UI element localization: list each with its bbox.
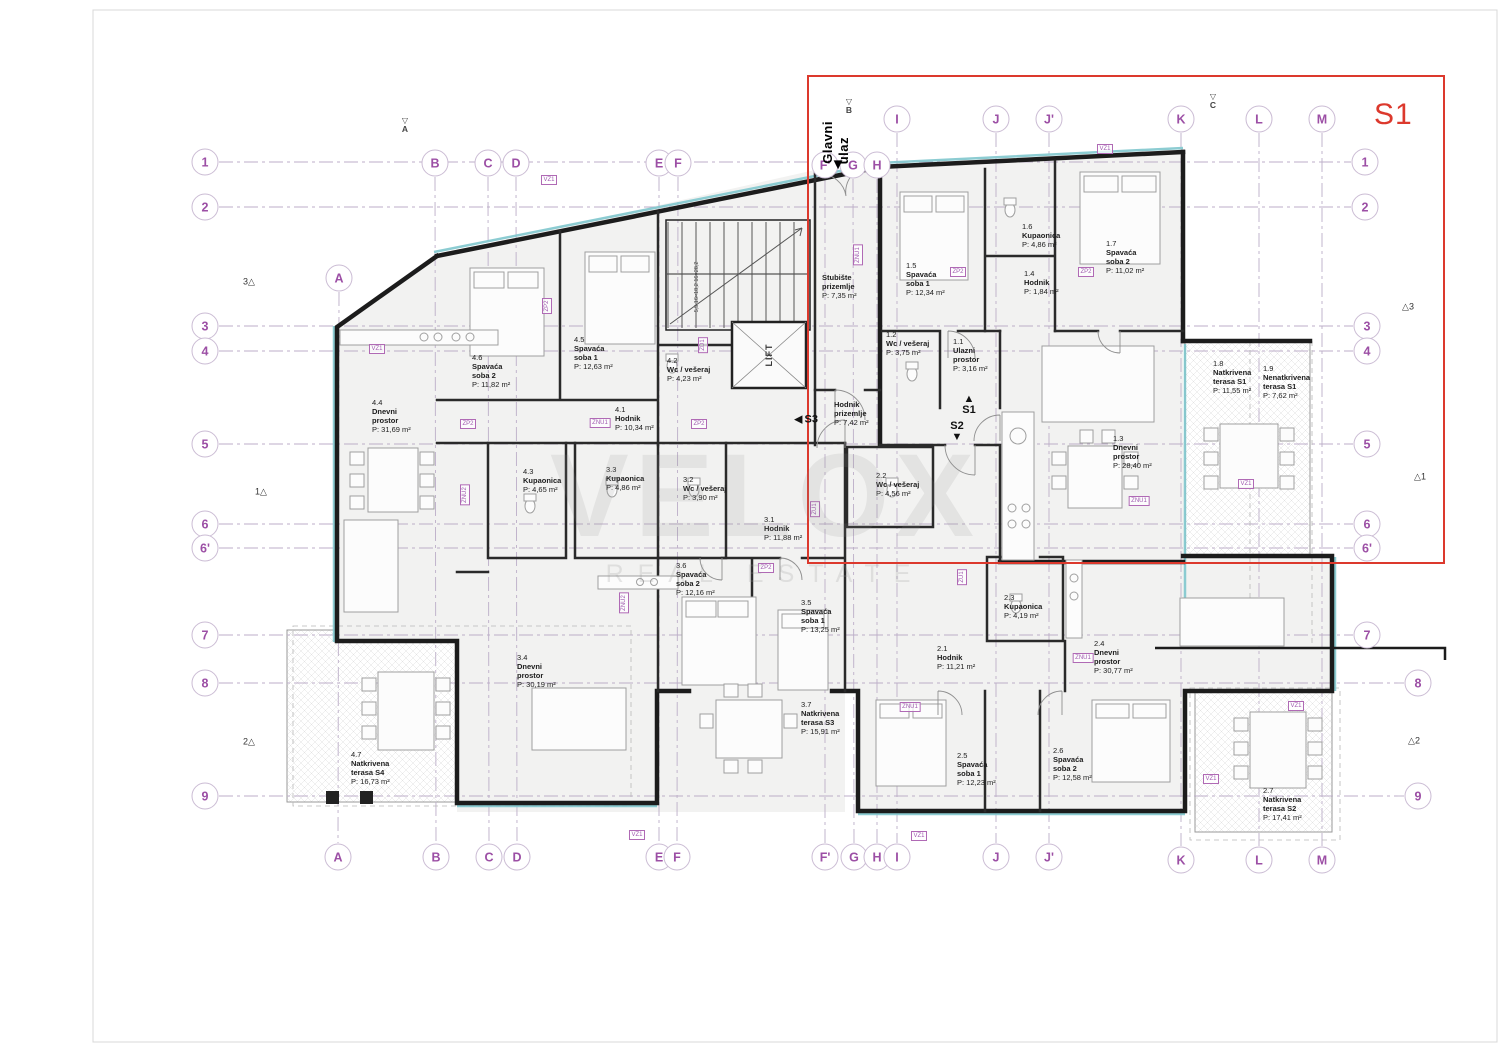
main-entrance-label: Glavni ulaz xyxy=(820,92,851,164)
floor-plan-sheet: AABBCCDDEEFFF'F'GGHHIIJJJ'J'KKLLMM112233… xyxy=(0,0,1500,1061)
stair-note1: 16×18,2 xyxy=(694,283,700,303)
stair-dimension-note: 5,5 16×18,2 16×28,2 xyxy=(694,262,700,313)
stair-note2: 16×28,2 xyxy=(694,262,700,282)
watermark: VELOX xyxy=(530,428,1000,564)
watermark-subtitle: REAL ESTATE xyxy=(520,560,1010,589)
unit-s1-title: S1 xyxy=(1374,98,1413,132)
stair-flight: 5,5 xyxy=(694,305,700,313)
lift-label: LIFT xyxy=(764,344,774,367)
entrance-arrow-icon: ▼ xyxy=(831,158,846,172)
